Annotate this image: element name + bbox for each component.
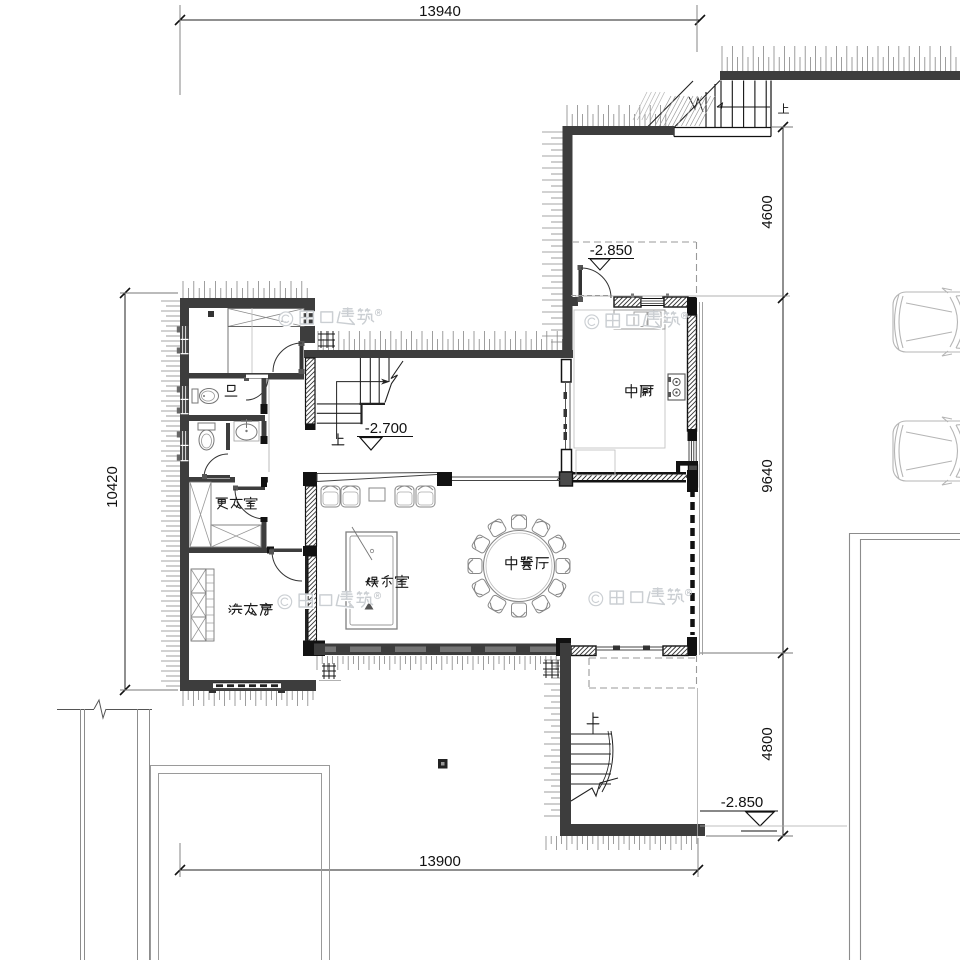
svg-text:4800: 4800 [759, 727, 776, 760]
svg-text:9640: 9640 [759, 459, 776, 492]
svg-text:13900: 13900 [419, 853, 461, 870]
svg-text:4600: 4600 [759, 195, 776, 228]
svg-text:-2.700: -2.700 [365, 420, 408, 437]
svg-text:-2.850: -2.850 [721, 794, 764, 811]
svg-text:10420: 10420 [104, 466, 121, 508]
svg-text:13940: 13940 [419, 3, 461, 20]
svg-text:-2.850: -2.850 [590, 242, 633, 259]
